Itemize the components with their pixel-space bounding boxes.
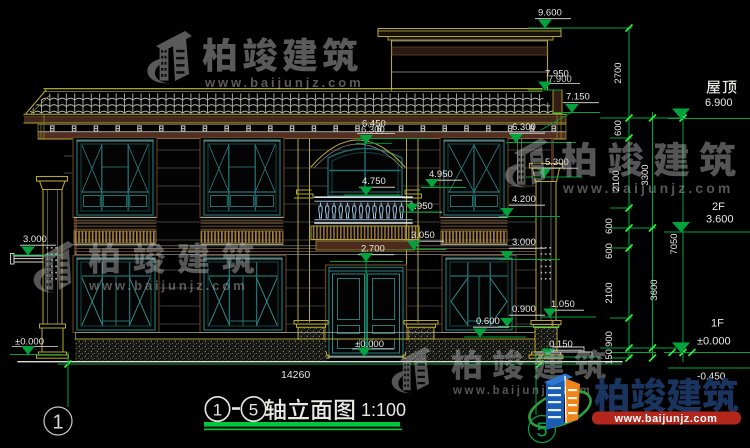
svg-text:www.baijunjz.com: www.baijunjz.com [614,413,718,425]
svg-text:1:100: 1:100 [361,400,406,420]
svg-text:7050: 7050 [669,233,680,254]
svg-text:www.baijunjz.com: www.baijunjz.com [562,180,733,196]
svg-text:0.150: 0.150 [549,339,573,350]
svg-text:0.600: 0.600 [476,316,500,327]
svg-text:5: 5 [249,401,258,420]
svg-text:900: 900 [604,331,615,347]
svg-text:3.000: 3.000 [23,234,47,245]
svg-text:3.050: 3.050 [411,230,435,241]
svg-text:5: 5 [536,420,547,442]
svg-text:1: 1 [213,401,222,420]
svg-text:7.150: 7.150 [566,91,590,102]
svg-text:9.600: 9.600 [538,7,562,18]
svg-text:4.950: 4.950 [429,169,453,180]
svg-text:6.300: 6.300 [512,122,536,133]
svg-text:2700: 2700 [613,62,624,83]
svg-text:6.900: 6.900 [705,97,733,109]
svg-text:14260: 14260 [281,369,310,381]
svg-text:4.750: 4.750 [362,176,386,187]
svg-text:3.000: 3.000 [512,237,536,248]
svg-text:1F: 1F [711,318,724,330]
svg-text:150: 150 [604,349,615,365]
svg-text:www.baijunjz.com: www.baijunjz.com [88,278,248,293]
svg-text:600: 600 [604,218,615,234]
svg-text:3.600: 3.600 [706,214,734,226]
svg-text:0.900: 0.900 [512,304,536,315]
svg-text:2.700: 2.700 [361,243,385,254]
svg-text:1: 1 [52,412,63,434]
svg-text:3600: 3600 [649,279,660,300]
svg-text:2100: 2100 [604,282,615,303]
svg-text:4.200: 4.200 [512,194,536,205]
svg-text:±0.000: ±0.000 [15,337,44,348]
svg-text:600: 600 [613,120,624,136]
svg-text:2F: 2F [712,201,725,213]
svg-text:www.baijunjz.com: www.baijunjz.com [204,75,364,90]
svg-text:1.050: 1.050 [551,299,575,310]
svg-text:600: 600 [604,243,615,259]
svg-text:±0.000: ±0.000 [697,336,731,348]
